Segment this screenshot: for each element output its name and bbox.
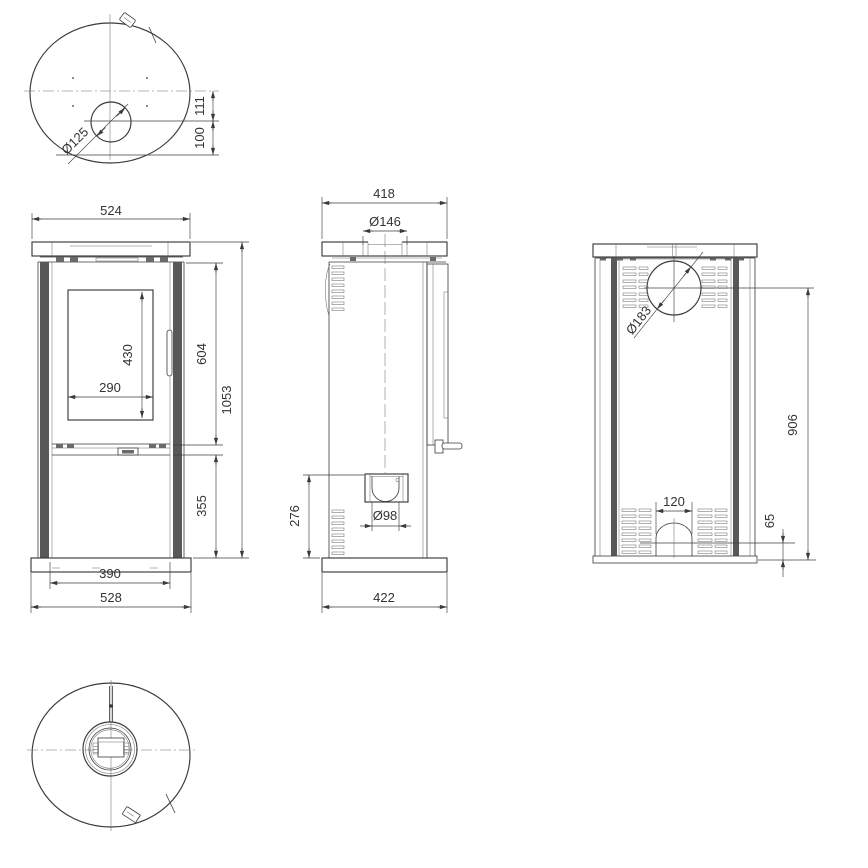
dim-back-opening-width: 120: [663, 494, 685, 509]
dim-side-inlet-diameter: Ø98: [373, 508, 398, 523]
bottom-inlet-detail: [98, 738, 124, 757]
dim-front-base-width: 528: [100, 590, 122, 605]
stove-dimension-drawing: Ø125 111 100 524 43: [0, 0, 868, 868]
dim-front-top-width: 524: [100, 203, 122, 218]
front-door-handle: [167, 330, 172, 376]
front-right-column: [173, 262, 182, 558]
dim-side-inlet-height: 276: [287, 505, 302, 527]
dim-front-upper-height: 604: [194, 343, 209, 365]
dim-front-lower-height: 355: [194, 495, 209, 517]
dim-back-opening-height: 65: [762, 514, 777, 528]
dim-back-outlet-height: 906: [785, 414, 800, 436]
dim-front-glass-height: 430: [120, 344, 135, 366]
dim-side-base-depth: 422: [373, 590, 395, 605]
dim-side-top-depth: 418: [373, 186, 395, 201]
back-left-column: [611, 258, 617, 556]
dim-top-flue-to-center: 111: [192, 96, 207, 116]
back-right-column: [733, 258, 739, 556]
dim-top-flue-to-edge: 100: [192, 127, 207, 149]
dim-side-collar-diameter: Ø146: [369, 214, 401, 229]
dim-front-total-height: 1053: [219, 386, 234, 415]
front-left-column: [40, 262, 49, 558]
dim-front-body-width: 390: [99, 566, 121, 581]
drawing-canvas: Ø125 111 100 524 43: [0, 0, 868, 868]
side-door-handle: [442, 443, 462, 449]
dim-front-glass-width: 290: [99, 380, 121, 395]
